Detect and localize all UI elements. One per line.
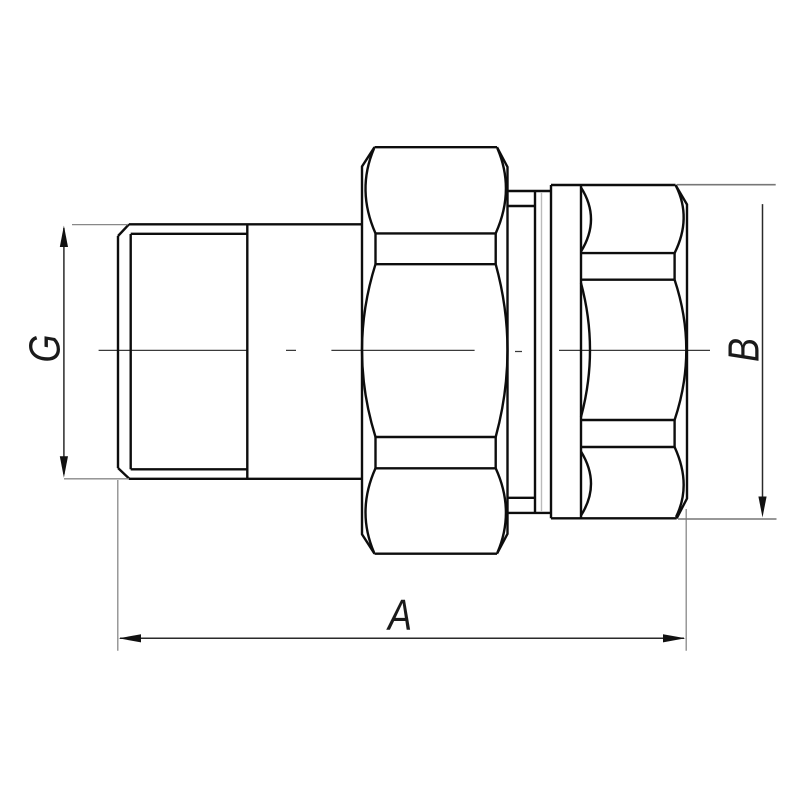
svg-text:B: B [719,338,768,362]
svg-text:G: G [20,334,69,362]
svg-text:A: A [386,590,412,639]
